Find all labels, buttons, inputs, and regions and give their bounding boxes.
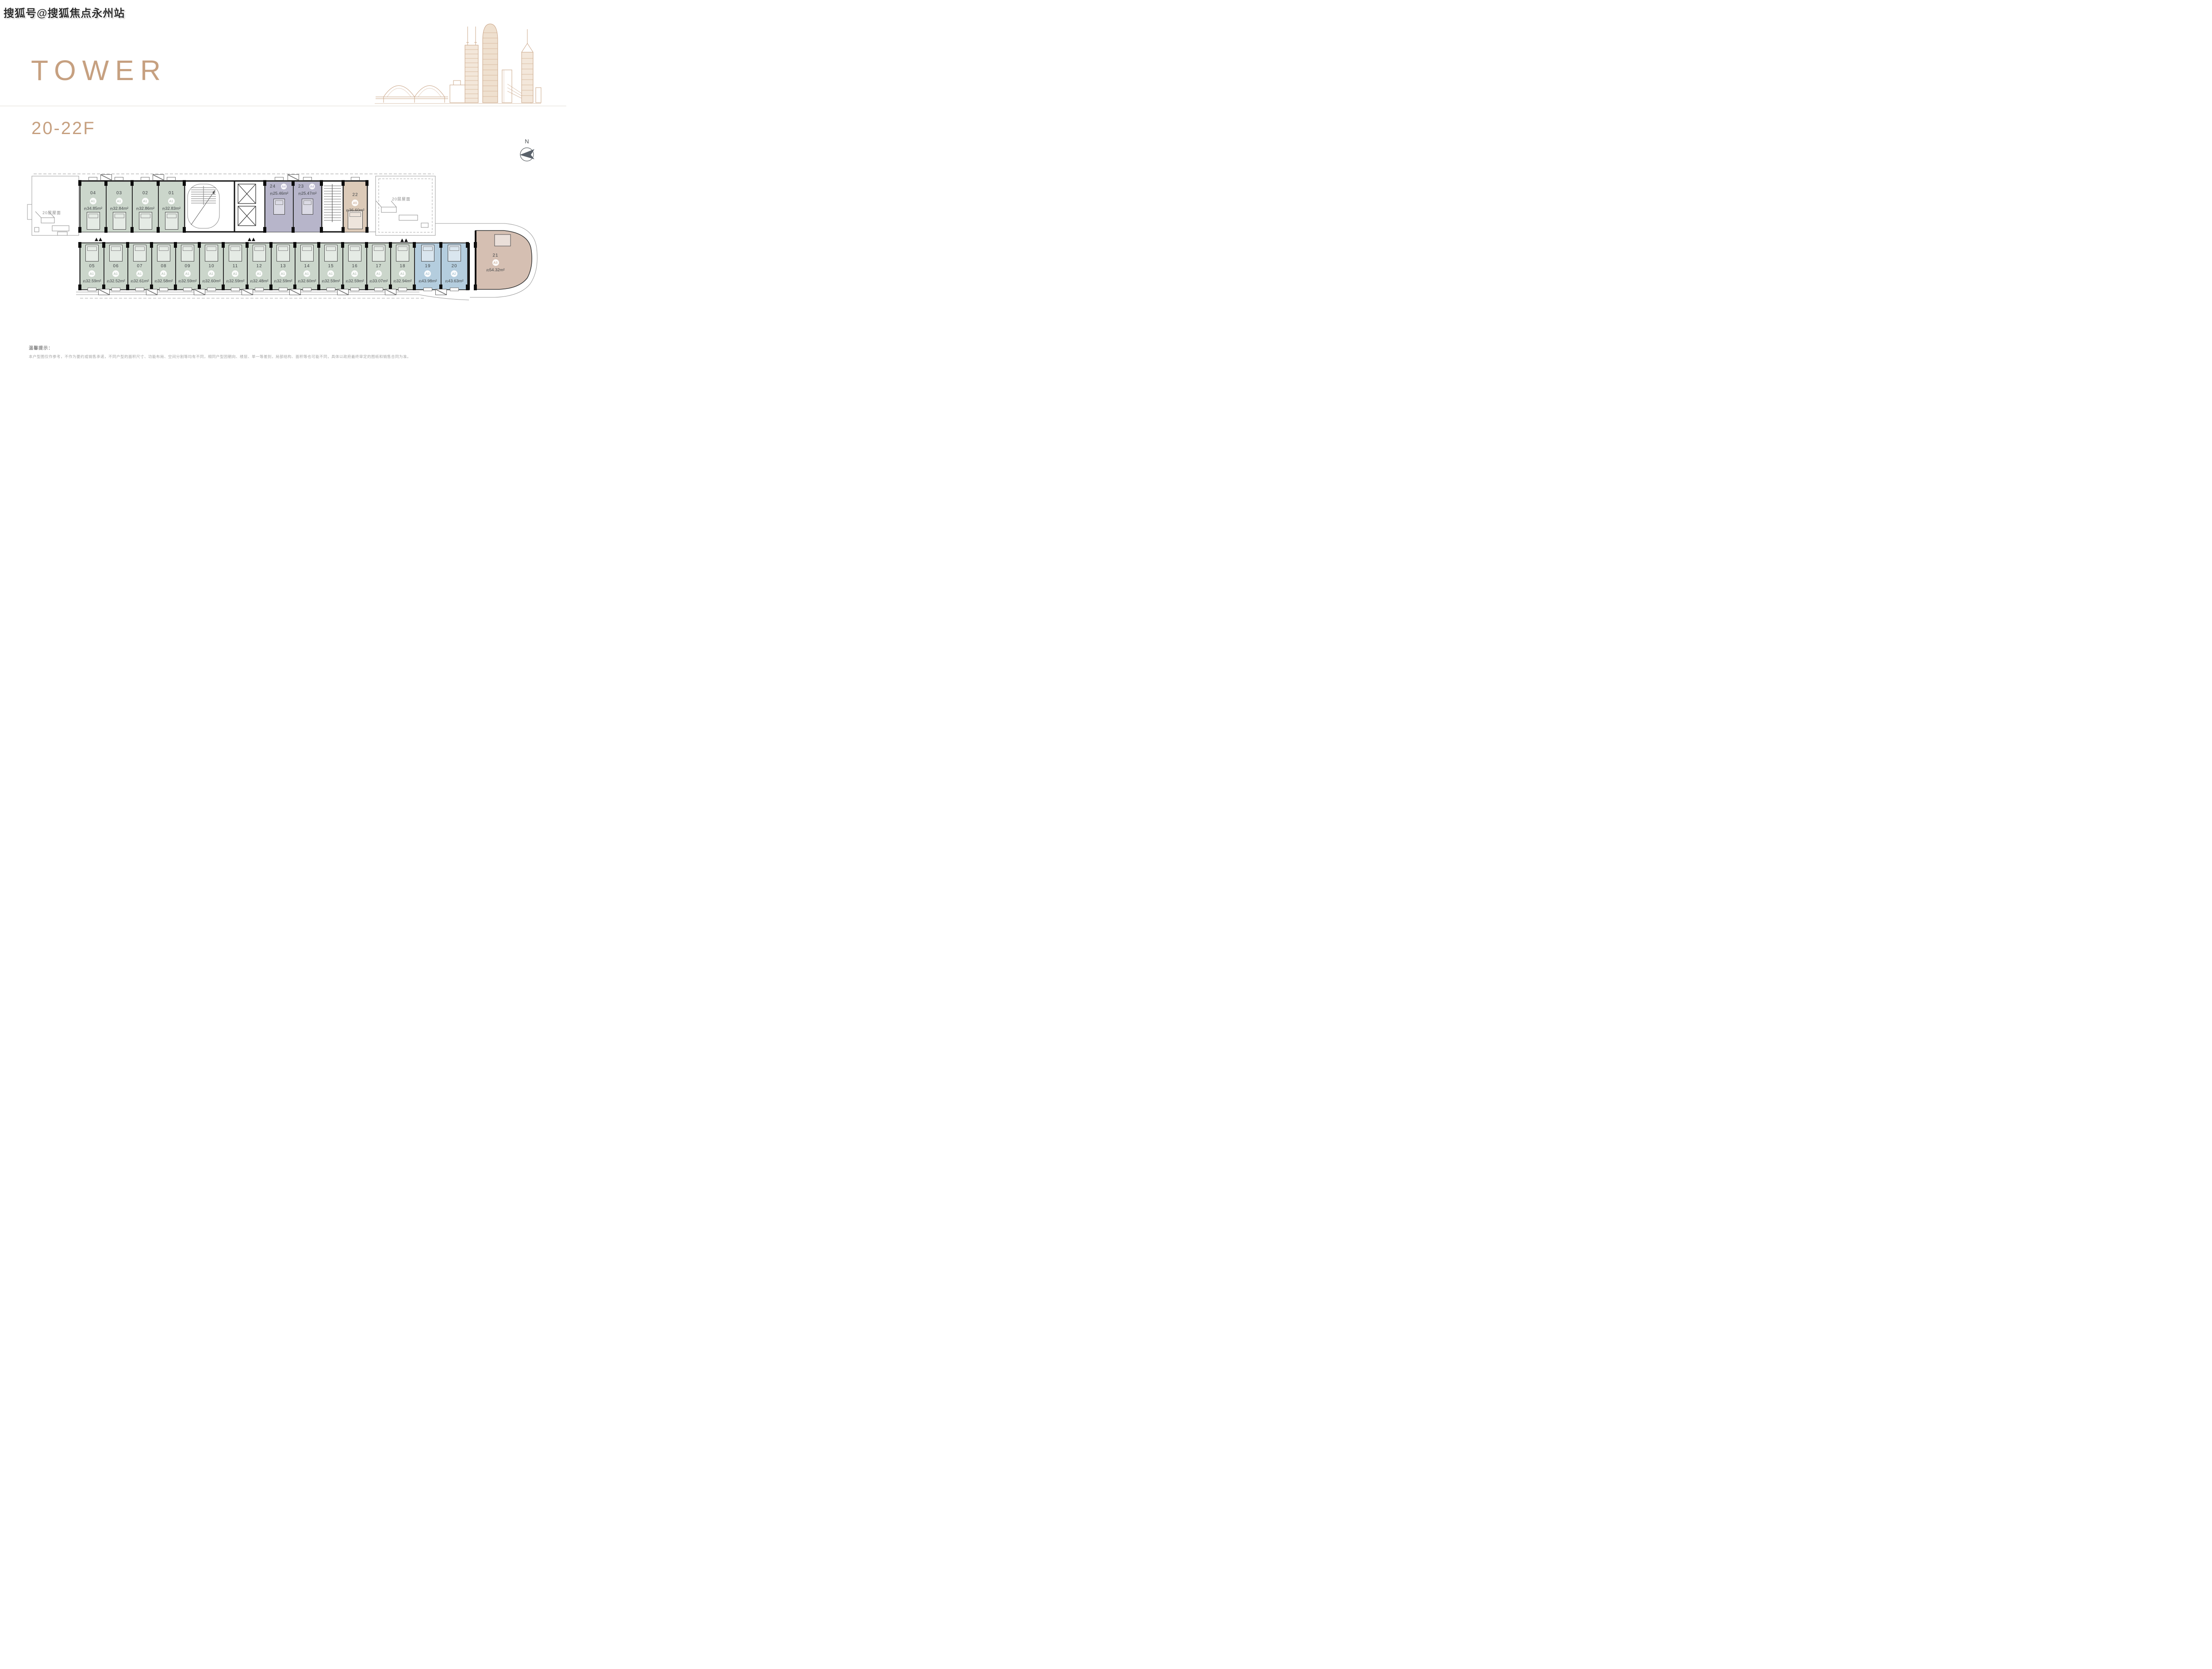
unit-area: 约32.94m² <box>391 279 415 284</box>
column-block <box>126 242 129 248</box>
party-wall <box>467 243 468 289</box>
area-unit: m² <box>216 279 221 284</box>
area-value: 43.98 <box>422 279 432 284</box>
area-unit: m² <box>288 279 292 284</box>
window <box>115 177 123 181</box>
unit-type-badge: A1 <box>112 270 119 277</box>
bathroom-pod <box>421 245 434 262</box>
column-block <box>474 242 477 248</box>
ac-louver <box>435 289 447 295</box>
area-value: 25.47 <box>301 191 312 196</box>
unit-number: 19 <box>415 264 441 269</box>
unit-cell: 16A1约32.59m² <box>343 243 367 289</box>
area-unit: m² <box>97 206 102 211</box>
area-value: 32.94 <box>396 279 407 284</box>
area-unit: m² <box>96 279 101 284</box>
party-wall <box>184 181 185 232</box>
column-block <box>269 242 273 248</box>
column-block <box>246 242 249 248</box>
window <box>303 177 312 181</box>
area-value: 32.86 <box>139 206 150 211</box>
unit-type-label: A1 <box>185 272 189 276</box>
column-block <box>78 227 81 233</box>
unit-type-label: A2 <box>452 272 456 276</box>
bathroom-pod <box>372 245 385 262</box>
column-block <box>317 242 320 248</box>
unit-type-badge: A1 <box>399 270 406 277</box>
unit-cell: 19A2约43.98m² <box>415 243 441 289</box>
area-value: 32.61 <box>134 279 144 284</box>
ac-louver <box>385 289 396 295</box>
section-dart <box>400 238 404 242</box>
column-block <box>317 285 320 290</box>
ac-louver <box>100 174 112 181</box>
unit-number: 17 <box>367 264 391 269</box>
unit-type-badge: A1 <box>184 270 191 277</box>
area-value: 32.48 <box>253 279 264 284</box>
column-block <box>222 285 225 290</box>
unit-area: 约33.07m² <box>367 279 391 284</box>
unit-number: 04 <box>80 191 106 196</box>
bathroom-pod <box>448 245 461 262</box>
unit-number: 03 <box>106 191 132 196</box>
unit-number: 06 <box>104 264 128 269</box>
column-block <box>413 242 416 248</box>
column-block <box>320 180 323 186</box>
unit-cell: 01A1约32.83m² <box>158 182 184 232</box>
unit-type-label: A1 <box>143 200 147 203</box>
unit-area: 约32.59m² <box>80 279 104 284</box>
bathroom-pod <box>181 245 194 262</box>
window <box>231 288 240 291</box>
window <box>351 177 360 181</box>
unit-number: 13 <box>271 264 295 269</box>
unit-type-label: A1 <box>233 272 237 276</box>
area-unit: m² <box>168 279 173 284</box>
column-block <box>269 285 273 290</box>
window <box>374 288 383 291</box>
bathroom-pod <box>157 245 170 262</box>
column-block <box>466 242 469 248</box>
unit-type-badge: A1 <box>160 270 167 277</box>
window <box>275 177 284 181</box>
bathroom-pod <box>276 245 290 262</box>
area-value: 54.32 <box>489 268 500 273</box>
unit-type-badge: A1 <box>256 270 262 277</box>
unit-type-label: A5 <box>353 201 357 205</box>
unit-cell: 18A1约32.94m² <box>391 243 415 289</box>
notice-title: 温馨提示： <box>29 344 53 351</box>
unit-number: 18 <box>391 264 415 269</box>
area-value: 32.59 <box>181 279 192 284</box>
area-unit: m² <box>407 279 412 284</box>
ac-louver <box>153 174 164 181</box>
party-wall <box>295 243 296 289</box>
column-block <box>183 227 186 233</box>
unit-number: 12 <box>247 264 271 269</box>
unit-type-label: A1 <box>117 200 121 203</box>
window <box>167 177 176 181</box>
unit-number: 14 <box>295 264 319 269</box>
unit-area: 约32.52m² <box>104 279 128 284</box>
bathroom-pod <box>302 199 313 215</box>
unit-cell: 11A1约32.59m² <box>223 243 247 289</box>
unit-cell: 13A1约32.59m² <box>271 243 295 289</box>
column-block <box>198 242 201 248</box>
unit-number: 20 <box>441 264 468 269</box>
column-block <box>131 180 134 186</box>
unit-area: 约43.98m² <box>415 279 441 284</box>
unit-number: 16 <box>343 264 367 269</box>
area-unit: m² <box>176 206 180 211</box>
unit-cell: 02A1约32.86m² <box>132 182 158 232</box>
unit-type-badge: A1 <box>168 198 175 204</box>
column-block <box>474 285 477 290</box>
unit-type-label: A1 <box>257 272 261 276</box>
area-value: 32.83 <box>165 206 176 211</box>
unit-type-badge: A3 <box>492 259 499 266</box>
unit-cell: 05A1约32.59m² <box>80 243 104 289</box>
column-block <box>341 242 344 248</box>
bathroom-pod <box>348 245 361 262</box>
window <box>303 288 311 291</box>
area-unit: m² <box>383 279 388 284</box>
area-unit: m² <box>144 279 149 284</box>
unit-area: 约32.84m² <box>106 206 132 211</box>
unit-type-label: A1 <box>353 272 357 276</box>
unit-type-label: A1 <box>169 200 173 203</box>
column-block <box>320 227 323 233</box>
unit-cell: 03A1约32.84m² <box>106 182 132 232</box>
unit-area: 约25.47m² <box>293 191 322 196</box>
section-dart <box>99 238 102 241</box>
window <box>350 288 359 291</box>
area-unit: m² <box>312 191 317 196</box>
area-value: 32.58 <box>157 279 168 284</box>
unit-area: 约32.60m² <box>200 279 223 284</box>
area-value: 32.52 <box>110 279 120 284</box>
area-unit: m² <box>284 191 288 196</box>
unit-type-badge: A2 <box>424 270 431 277</box>
unit-cell: 04A1约34.85m² <box>80 182 106 232</box>
column-block <box>389 242 392 248</box>
bathroom-pod <box>87 212 100 230</box>
unit-number: 05 <box>80 264 104 269</box>
window <box>88 177 97 181</box>
party-wall <box>367 181 368 232</box>
window <box>88 288 96 291</box>
unit-area: 约32.59m² <box>176 279 200 284</box>
unit-type-label: A3 <box>493 261 497 265</box>
unit-number: 23 <box>293 184 309 189</box>
area-value: 32.59 <box>86 279 96 284</box>
party-wall <box>342 243 343 289</box>
unit-cell: 10A1约32.60m² <box>200 243 223 289</box>
unit-area: 约32.61m² <box>128 279 152 284</box>
section-dart <box>404 238 408 242</box>
column-block <box>222 242 225 248</box>
unit-area: 约25.46m² <box>265 191 293 196</box>
unit-type-badge: A1 <box>232 270 238 277</box>
bathroom-pod <box>348 211 363 229</box>
party-wall <box>151 243 152 289</box>
column-block <box>78 180 81 186</box>
unit-cell: 14A1约32.60m² <box>295 243 319 289</box>
column-block <box>263 180 266 186</box>
column-block <box>183 180 186 186</box>
area-unit: m² <box>432 279 437 284</box>
unit-number: 24 <box>265 184 280 189</box>
party-wall <box>321 181 322 232</box>
unit-type-label: A1 <box>329 272 333 276</box>
area-value: 32.60 <box>205 279 216 284</box>
unit-type-label: A4 <box>310 185 314 188</box>
party-wall <box>80 181 81 232</box>
area-unit: m² <box>150 206 154 211</box>
window <box>255 288 264 291</box>
roof-label-right: 20层屋面 <box>392 196 411 202</box>
column-block <box>263 227 266 233</box>
unit-type-badge: A5 <box>352 200 358 206</box>
area-unit: m² <box>240 279 245 284</box>
unit-type-label: A1 <box>400 272 404 276</box>
party-wall <box>265 181 265 232</box>
unit-area: 约32.59m² <box>223 279 247 284</box>
unit-type-label: A1 <box>281 272 285 276</box>
unit-area: 约32.48m² <box>247 279 271 284</box>
column-block <box>365 180 369 186</box>
area-value: 25.46 <box>273 191 284 196</box>
area-value: 32.59 <box>229 279 240 284</box>
window <box>450 288 459 291</box>
unit-area: 约32.58m² <box>152 279 176 284</box>
party-wall <box>247 243 248 289</box>
column-block <box>439 242 442 248</box>
window <box>159 288 168 291</box>
unit-type-badge: A1 <box>88 270 95 277</box>
bathroom-pod <box>139 212 152 230</box>
notice-body: 本户型图仅作参考，不作为要约或销售承诺，不同户型的面积尺寸、功能布局、空间分割等… <box>29 354 538 359</box>
column-block <box>342 180 345 186</box>
party-wall <box>199 243 200 289</box>
section-dart <box>252 238 255 241</box>
bathroom-pod <box>229 245 242 262</box>
section-dart <box>248 238 251 241</box>
ac-louver <box>288 174 299 181</box>
unit-number: 11 <box>223 264 247 269</box>
unit-cell: 23A4约25.47m² <box>293 182 322 232</box>
unit-type-label: A4 <box>282 185 286 188</box>
party-wall <box>175 243 176 289</box>
column-block <box>104 180 108 186</box>
unit-area: 约32.59m² <box>343 279 367 284</box>
unit-type-label: A1 <box>161 272 165 276</box>
unit-type-label: A1 <box>114 272 118 276</box>
unit-type-badge: A1 <box>375 270 382 277</box>
ac-louver <box>242 289 253 295</box>
bathroom-pod <box>300 245 314 262</box>
unit-number: 15 <box>319 264 343 269</box>
column-block <box>466 285 469 290</box>
unit-cell: 22A5约36.60m² <box>343 182 367 232</box>
unit-cell: 20A2约43.63m² <box>441 243 468 289</box>
ac-louver <box>98 289 110 295</box>
unit-type-label: A1 <box>305 272 309 276</box>
ac-louver <box>146 289 157 295</box>
unit-number: 08 <box>152 264 176 269</box>
window <box>279 288 288 291</box>
unit-cell: 17A1约33.07m² <box>367 243 391 289</box>
unit-type-badge: A1 <box>142 198 149 204</box>
area-unit: m² <box>500 268 505 273</box>
window <box>398 288 407 291</box>
column-block <box>150 242 153 248</box>
unit-cell: 09A1约32.59m² <box>176 243 200 289</box>
unit-cell: 24A4约25.46m² <box>265 182 293 232</box>
unit-type-badge: A4 <box>309 184 315 189</box>
party-wall <box>223 243 224 289</box>
unit-area: 约43.63m² <box>441 279 468 284</box>
unit-type-label: A1 <box>138 272 142 276</box>
window <box>111 288 120 291</box>
party-wall <box>106 181 107 232</box>
unit-area: 约32.59m² <box>271 279 295 284</box>
party-wall <box>132 181 133 232</box>
unit-type-label: A1 <box>209 272 213 276</box>
floorplan-page: 搜狐号@搜狐焦点永州站 TOWER 20-22F <box>0 0 566 417</box>
party-wall <box>293 181 294 232</box>
party-wall <box>158 181 159 232</box>
party-wall <box>127 243 128 289</box>
unit-number: 07 <box>128 264 152 269</box>
unit-type-badge: A1 <box>351 270 358 277</box>
party-wall <box>80 243 81 289</box>
column-block <box>131 227 134 233</box>
area-value: 34.85 <box>87 206 97 211</box>
bathroom-pod <box>253 245 266 262</box>
area-value: 33.07 <box>373 279 383 284</box>
bathroom-pod <box>113 212 126 230</box>
unit-cell: 15A1约32.59m² <box>319 243 343 289</box>
area-unit: m² <box>359 279 364 284</box>
unit-cell: 07A1约32.61m² <box>128 243 152 289</box>
area-unit: m² <box>264 279 269 284</box>
unit-area: 约32.60m² <box>295 279 319 284</box>
window <box>326 288 335 291</box>
unit-type-badge: A1 <box>116 198 123 204</box>
unit-area: 约32.59m² <box>319 279 343 284</box>
window <box>183 288 192 291</box>
ac-louver <box>337 289 349 295</box>
party-wall <box>104 243 104 289</box>
bathroom-pod <box>85 245 99 262</box>
column-block <box>342 227 345 233</box>
area-unit: m² <box>459 279 464 284</box>
column-block <box>157 227 160 233</box>
column-block <box>292 227 295 233</box>
unit-cell: 12A1约32.48m² <box>247 243 271 289</box>
unit-type-label: A1 <box>376 272 380 276</box>
area-value: 32.84 <box>113 206 123 211</box>
unit-type-badge: A1 <box>280 270 286 277</box>
section-dart <box>95 238 98 241</box>
column-block <box>102 242 105 248</box>
unit-number: 01 <box>158 191 184 196</box>
unit-type-badge: A1 <box>327 270 334 277</box>
party-wall <box>319 243 319 289</box>
column-block <box>413 285 416 290</box>
ac-louver <box>289 289 301 295</box>
bathroom-pod <box>324 245 338 262</box>
unit-cell: 06A1约32.52m² <box>104 243 128 289</box>
bathroom-pod <box>273 199 285 215</box>
party-wall <box>441 243 442 289</box>
window <box>423 288 432 291</box>
bathroom-pod <box>109 245 123 262</box>
ac-louver <box>194 289 205 295</box>
area-value: 32.59 <box>325 279 335 284</box>
unit-area: 约54.32m² <box>478 268 513 273</box>
column-block <box>174 285 177 290</box>
area-unit: m² <box>192 279 197 284</box>
party-wall <box>271 243 272 289</box>
unit-cell: 21A3约54.32m² <box>478 253 513 273</box>
area-value: 43.63 <box>448 279 459 284</box>
bathroom-pod <box>133 245 146 262</box>
column-block <box>174 242 177 248</box>
column-block <box>126 285 129 290</box>
column-block <box>365 227 369 233</box>
unit-area: 约32.86m² <box>132 206 158 211</box>
party-wall <box>343 181 344 232</box>
area-unit: m² <box>311 279 316 284</box>
area-unit: m² <box>335 279 340 284</box>
unit-type-badge: A2 <box>451 270 457 277</box>
party-wall <box>390 243 391 289</box>
unit-number: 09 <box>176 264 200 269</box>
window <box>135 288 144 291</box>
column-block <box>293 242 296 248</box>
area-unit: m² <box>120 279 125 284</box>
area-value: 32.60 <box>301 279 311 284</box>
unit-area: 约34.85m² <box>80 206 106 211</box>
unit-type-badge: A1 <box>136 270 143 277</box>
unit-number: 22 <box>343 192 367 197</box>
unit-type-label: A1 <box>90 272 94 276</box>
party-wall <box>414 243 415 289</box>
area-unit: m² <box>123 206 128 211</box>
column-block <box>104 227 108 233</box>
bathroom-pod <box>205 245 218 262</box>
window <box>207 288 216 291</box>
unit-type-badge: A1 <box>303 270 310 277</box>
unit-type-badge: A1 <box>90 198 96 204</box>
party-wall <box>366 243 367 289</box>
bathroom-pod <box>396 245 409 262</box>
bathroom-pod <box>165 212 178 230</box>
column-block <box>157 180 160 186</box>
unit-type-label: A2 <box>426 272 430 276</box>
area-value: 32.59 <box>349 279 359 284</box>
column-block <box>365 285 368 290</box>
roof-label-left: 20层屋面 <box>42 210 61 215</box>
unit-number: 21 <box>478 253 513 258</box>
unit-type-badge: A4 <box>281 184 287 189</box>
unit-number: 02 <box>132 191 158 196</box>
column-block <box>292 180 295 186</box>
unit-number: 10 <box>200 264 223 269</box>
area-value: 32.59 <box>277 279 288 284</box>
